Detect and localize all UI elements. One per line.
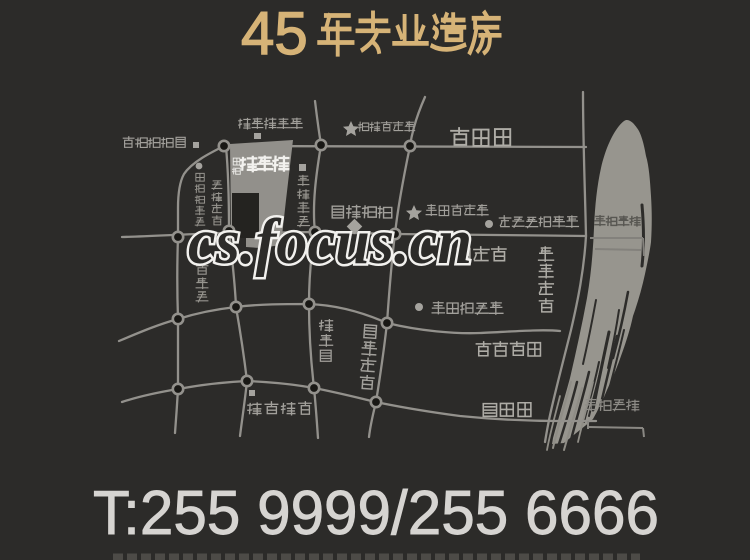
svg-text:T:255 9999/255 6666: T:255 9999/255 6666: [93, 479, 659, 548]
svg-text:45: 45: [241, 0, 308, 67]
svg-text:cs.focus.cn: cs.focus.cn: [188, 206, 472, 278]
